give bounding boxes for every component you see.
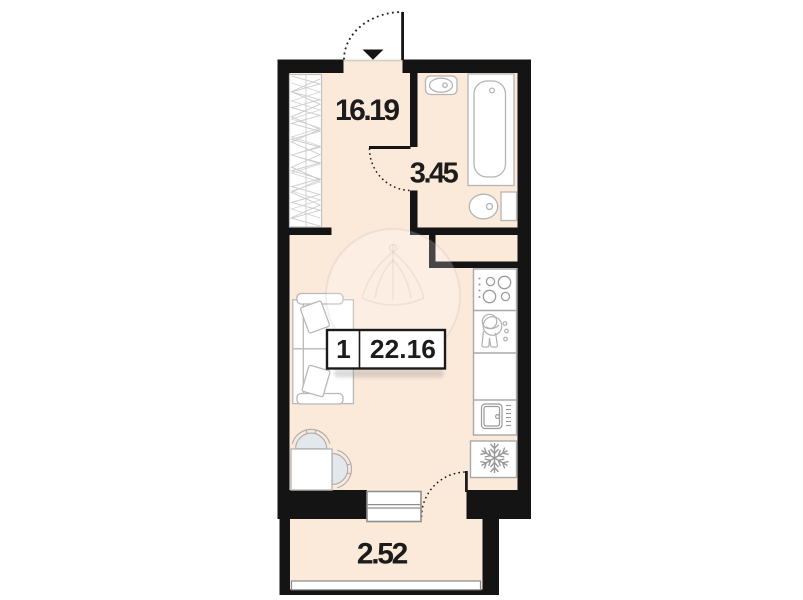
svg-text:2.52: 2.52 bbox=[357, 537, 409, 570]
svg-text:22.16: 22.16 bbox=[370, 334, 436, 364]
svg-text:16.19: 16.19 bbox=[335, 94, 400, 127]
svg-text:1: 1 bbox=[336, 334, 351, 364]
svg-text:3.45: 3.45 bbox=[410, 157, 459, 189]
